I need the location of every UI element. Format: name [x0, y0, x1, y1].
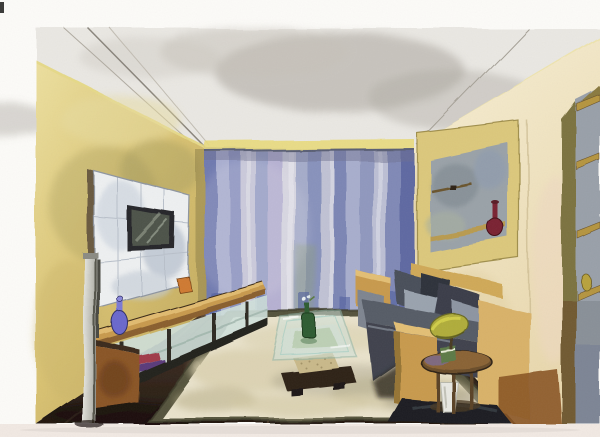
paper-grain	[0, 0, 600, 437]
watercolor-painting	[0, 0, 600, 437]
painting-canvas	[0, 0, 600, 437]
